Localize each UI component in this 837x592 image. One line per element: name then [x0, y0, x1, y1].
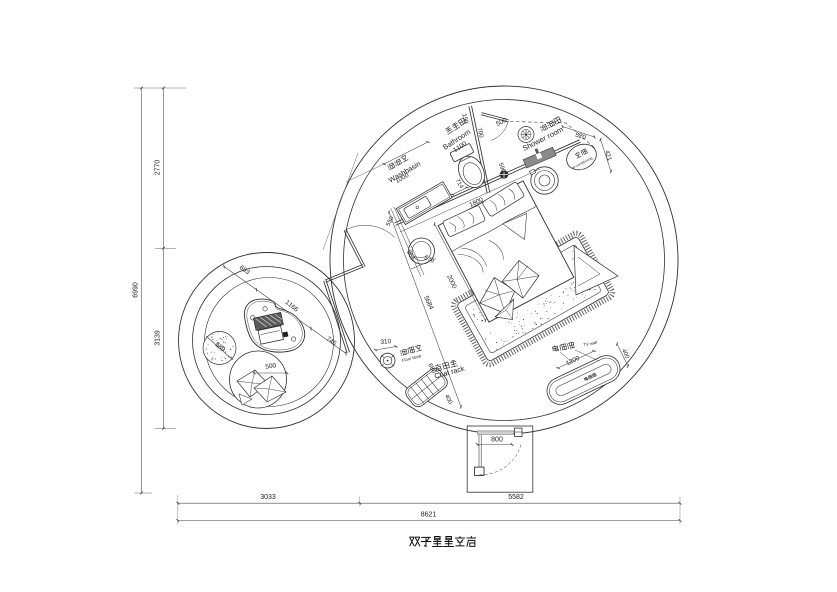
svg-text:3139: 3139: [155, 330, 162, 346]
svg-text:310: 310: [380, 338, 392, 346]
svg-text:3033: 3033: [260, 494, 276, 501]
svg-text:8621: 8621: [421, 512, 437, 519]
svg-text:5582: 5582: [508, 494, 524, 501]
svg-text:6990: 6990: [133, 282, 140, 298]
svg-text:2770: 2770: [155, 160, 162, 176]
svg-text:800: 800: [491, 437, 503, 444]
